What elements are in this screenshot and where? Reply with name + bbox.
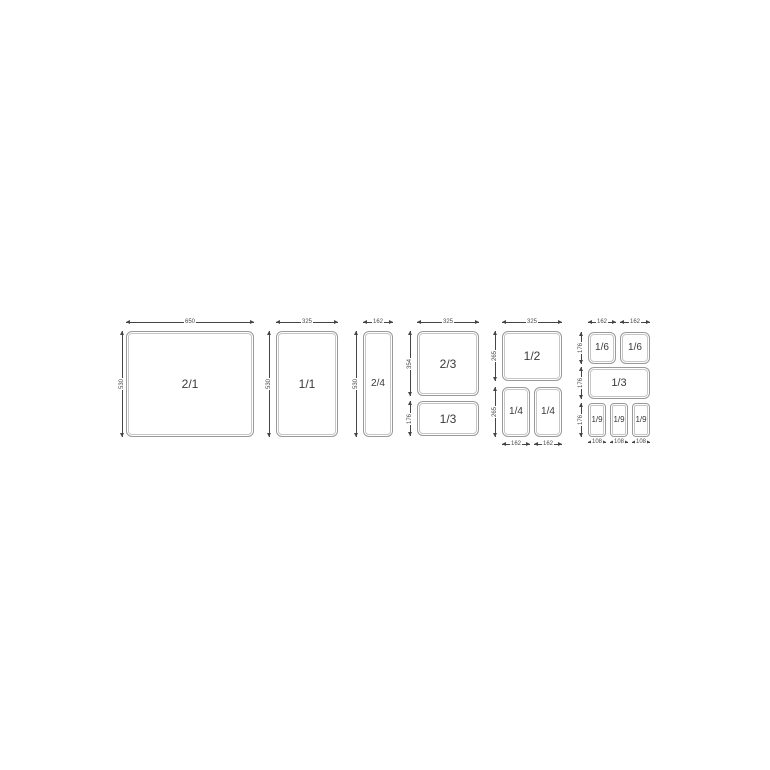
dimension-value: 176 [578,414,584,426]
arrow-left-icon [502,320,506,324]
pan-size-label: 1/6 [595,343,609,353]
arrow-up-icon [408,401,412,405]
arrow-down-icon [579,395,583,399]
pan-inner-outline: 2/1 [128,333,252,435]
pan-size-label: 1/9 [613,416,624,424]
arrow-right-icon [646,320,650,324]
pan-size-label: 1/3 [440,413,457,425]
dimension-width-650: 650 [126,319,254,326]
pan-gn-1-2: 1/2 [502,331,562,381]
dimension-depth-265-b: 265 [492,387,499,437]
dimension-value: 265 [492,350,498,362]
dimension-value: 162 [629,319,641,325]
pan-inner-outline: 1/4 [536,389,560,435]
dimension-depth-354: 354 [407,331,414,396]
pan-gn-2-3: 2/3 [417,331,479,396]
pan-inner-outline: 1/3 [590,369,648,397]
pan-gn-1-4-a: 1/4 [502,387,530,437]
arrow-right-icon [389,320,393,324]
dimension-value: 176 [407,412,413,424]
dimension-depth-176-b: 176 [578,332,585,364]
arrow-down-icon [354,433,358,437]
dimension-value: 265 [492,406,498,418]
dimension-value: 530 [119,378,125,390]
dimension-depth-265-a: 265 [492,331,499,381]
arrow-left-icon [276,320,280,324]
arrow-down-icon [267,433,271,437]
pan-inner-outline: 1/2 [504,333,560,379]
dimension-width-108-c: 108 [632,439,650,446]
pan-inner-outline: 1/9 [590,405,604,435]
dimension-value: 176 [578,342,584,354]
dimension-value: 108 [613,439,625,445]
pan-gn-1-6-b: 1/6 [620,332,650,364]
arrow-up-icon [579,332,583,336]
arrow-left-icon [126,320,130,324]
dimension-width-325-b: 325 [417,319,479,326]
arrow-up-icon [354,331,358,335]
arrow-left-icon [534,442,538,446]
arrow-right-icon [526,442,530,446]
dimension-value: 176 [578,377,584,389]
dimension-width-108-b: 108 [610,439,628,446]
dimension-width-325-c: 325 [502,319,562,326]
dimension-width-162-b: 162 [502,441,530,448]
pan-size-label: 2/4 [371,379,385,389]
arrow-left-icon [502,442,506,446]
pan-size-label: 1/6 [628,343,642,353]
dimension-value: 650 [184,319,196,325]
pan-size-label: 1/9 [635,416,646,424]
arrow-right-icon [250,320,254,324]
pan-size-label: 2/3 [440,358,457,370]
gastronorm-size-diagram: 2/11/12/42/31/31/21/41/41/61/61/31/91/91… [0,0,770,770]
pan-inner-outline: 1/1 [278,333,336,435]
dimension-width-162-a: 162 [363,319,393,326]
dimension-value: 162 [510,441,522,447]
dimension-depth-176-a: 176 [407,401,414,436]
arrow-right-icon [612,320,616,324]
arrow-down-icon [120,433,124,437]
dimension-value: 108 [635,439,647,445]
arrow-right-icon [475,320,479,324]
arrow-right-icon [558,320,562,324]
arrow-up-icon [579,367,583,371]
arrow-down-icon [579,433,583,437]
dimension-value: 325 [526,319,538,325]
arrow-down-icon [408,392,412,396]
dimension-width-162-d: 162 [588,319,616,326]
pan-gn-1-4-b: 1/4 [534,387,562,437]
dimension-width-325-a: 325 [276,319,338,326]
dimension-value: 530 [266,378,272,390]
arrow-right-icon [334,320,338,324]
arrow-up-icon [267,331,271,335]
pan-size-label: 1/1 [299,378,316,390]
dimension-depth-176-d: 176 [578,403,585,437]
dimension-value: 530 [353,378,359,390]
pan-size-label: 1/9 [591,416,602,424]
arrow-down-icon [493,433,497,437]
pan-inner-outline: 1/6 [622,334,648,362]
dimension-width-162-e: 162 [620,319,650,326]
arrow-up-icon [408,331,412,335]
dimension-width-162-c: 162 [534,441,562,448]
arrow-up-icon [120,331,124,335]
pan-gn-1-9-b: 1/9 [610,403,628,437]
pan-gn-1-6-a: 1/6 [588,332,616,364]
pan-inner-outline: 1/3 [419,403,477,434]
dimension-depth-176-c: 176 [578,367,585,399]
pan-size-label: 1/4 [509,407,523,417]
dimension-value: 108 [591,439,603,445]
pan-size-label: 1/2 [524,350,541,362]
pan-gn-1-9-c: 1/9 [632,403,650,437]
pan-size-label: 1/3 [611,378,626,389]
pan-gn-2-1: 2/1 [126,331,254,437]
dimension-value: 162 [596,319,608,325]
pan-inner-outline: 1/4 [504,389,528,435]
pan-inner-outline: 1/9 [634,405,648,435]
dimension-value: 354 [407,357,413,369]
arrow-down-icon [493,377,497,381]
arrow-right-icon [558,442,562,446]
arrow-down-icon [579,360,583,364]
arrow-down-icon [408,432,412,436]
pan-gn-1-3-a: 1/3 [417,401,479,436]
dimension-value: 325 [442,319,454,325]
pan-inner-outline: 1/6 [590,334,614,362]
dimension-depth-530-b: 530 [266,331,273,437]
pan-inner-outline: 1/9 [612,405,626,435]
arrow-left-icon [620,320,624,324]
pan-gn-1-9-a: 1/9 [588,403,606,437]
pan-size-label: 1/4 [541,407,555,417]
pan-size-label: 2/1 [182,378,199,390]
dimension-value: 325 [301,319,313,325]
arrow-left-icon [417,320,421,324]
dimension-depth-530-a: 530 [119,331,126,437]
pan-gn-1-1: 1/1 [276,331,338,437]
pan-inner-outline: 2/3 [419,333,477,394]
dimension-depth-530-c: 530 [353,331,360,437]
arrow-up-icon [493,331,497,335]
dimension-value: 162 [372,319,384,325]
dimension-value: 162 [542,441,554,447]
arrow-up-icon [579,403,583,407]
arrow-up-icon [493,387,497,391]
arrow-left-icon [363,320,367,324]
pan-gn-2-4: 2/4 [363,331,393,437]
pan-gn-1-3-b: 1/3 [588,367,650,399]
pan-inner-outline: 2/4 [365,333,391,435]
dimension-width-108-a: 108 [588,439,606,446]
arrow-left-icon [588,320,592,324]
